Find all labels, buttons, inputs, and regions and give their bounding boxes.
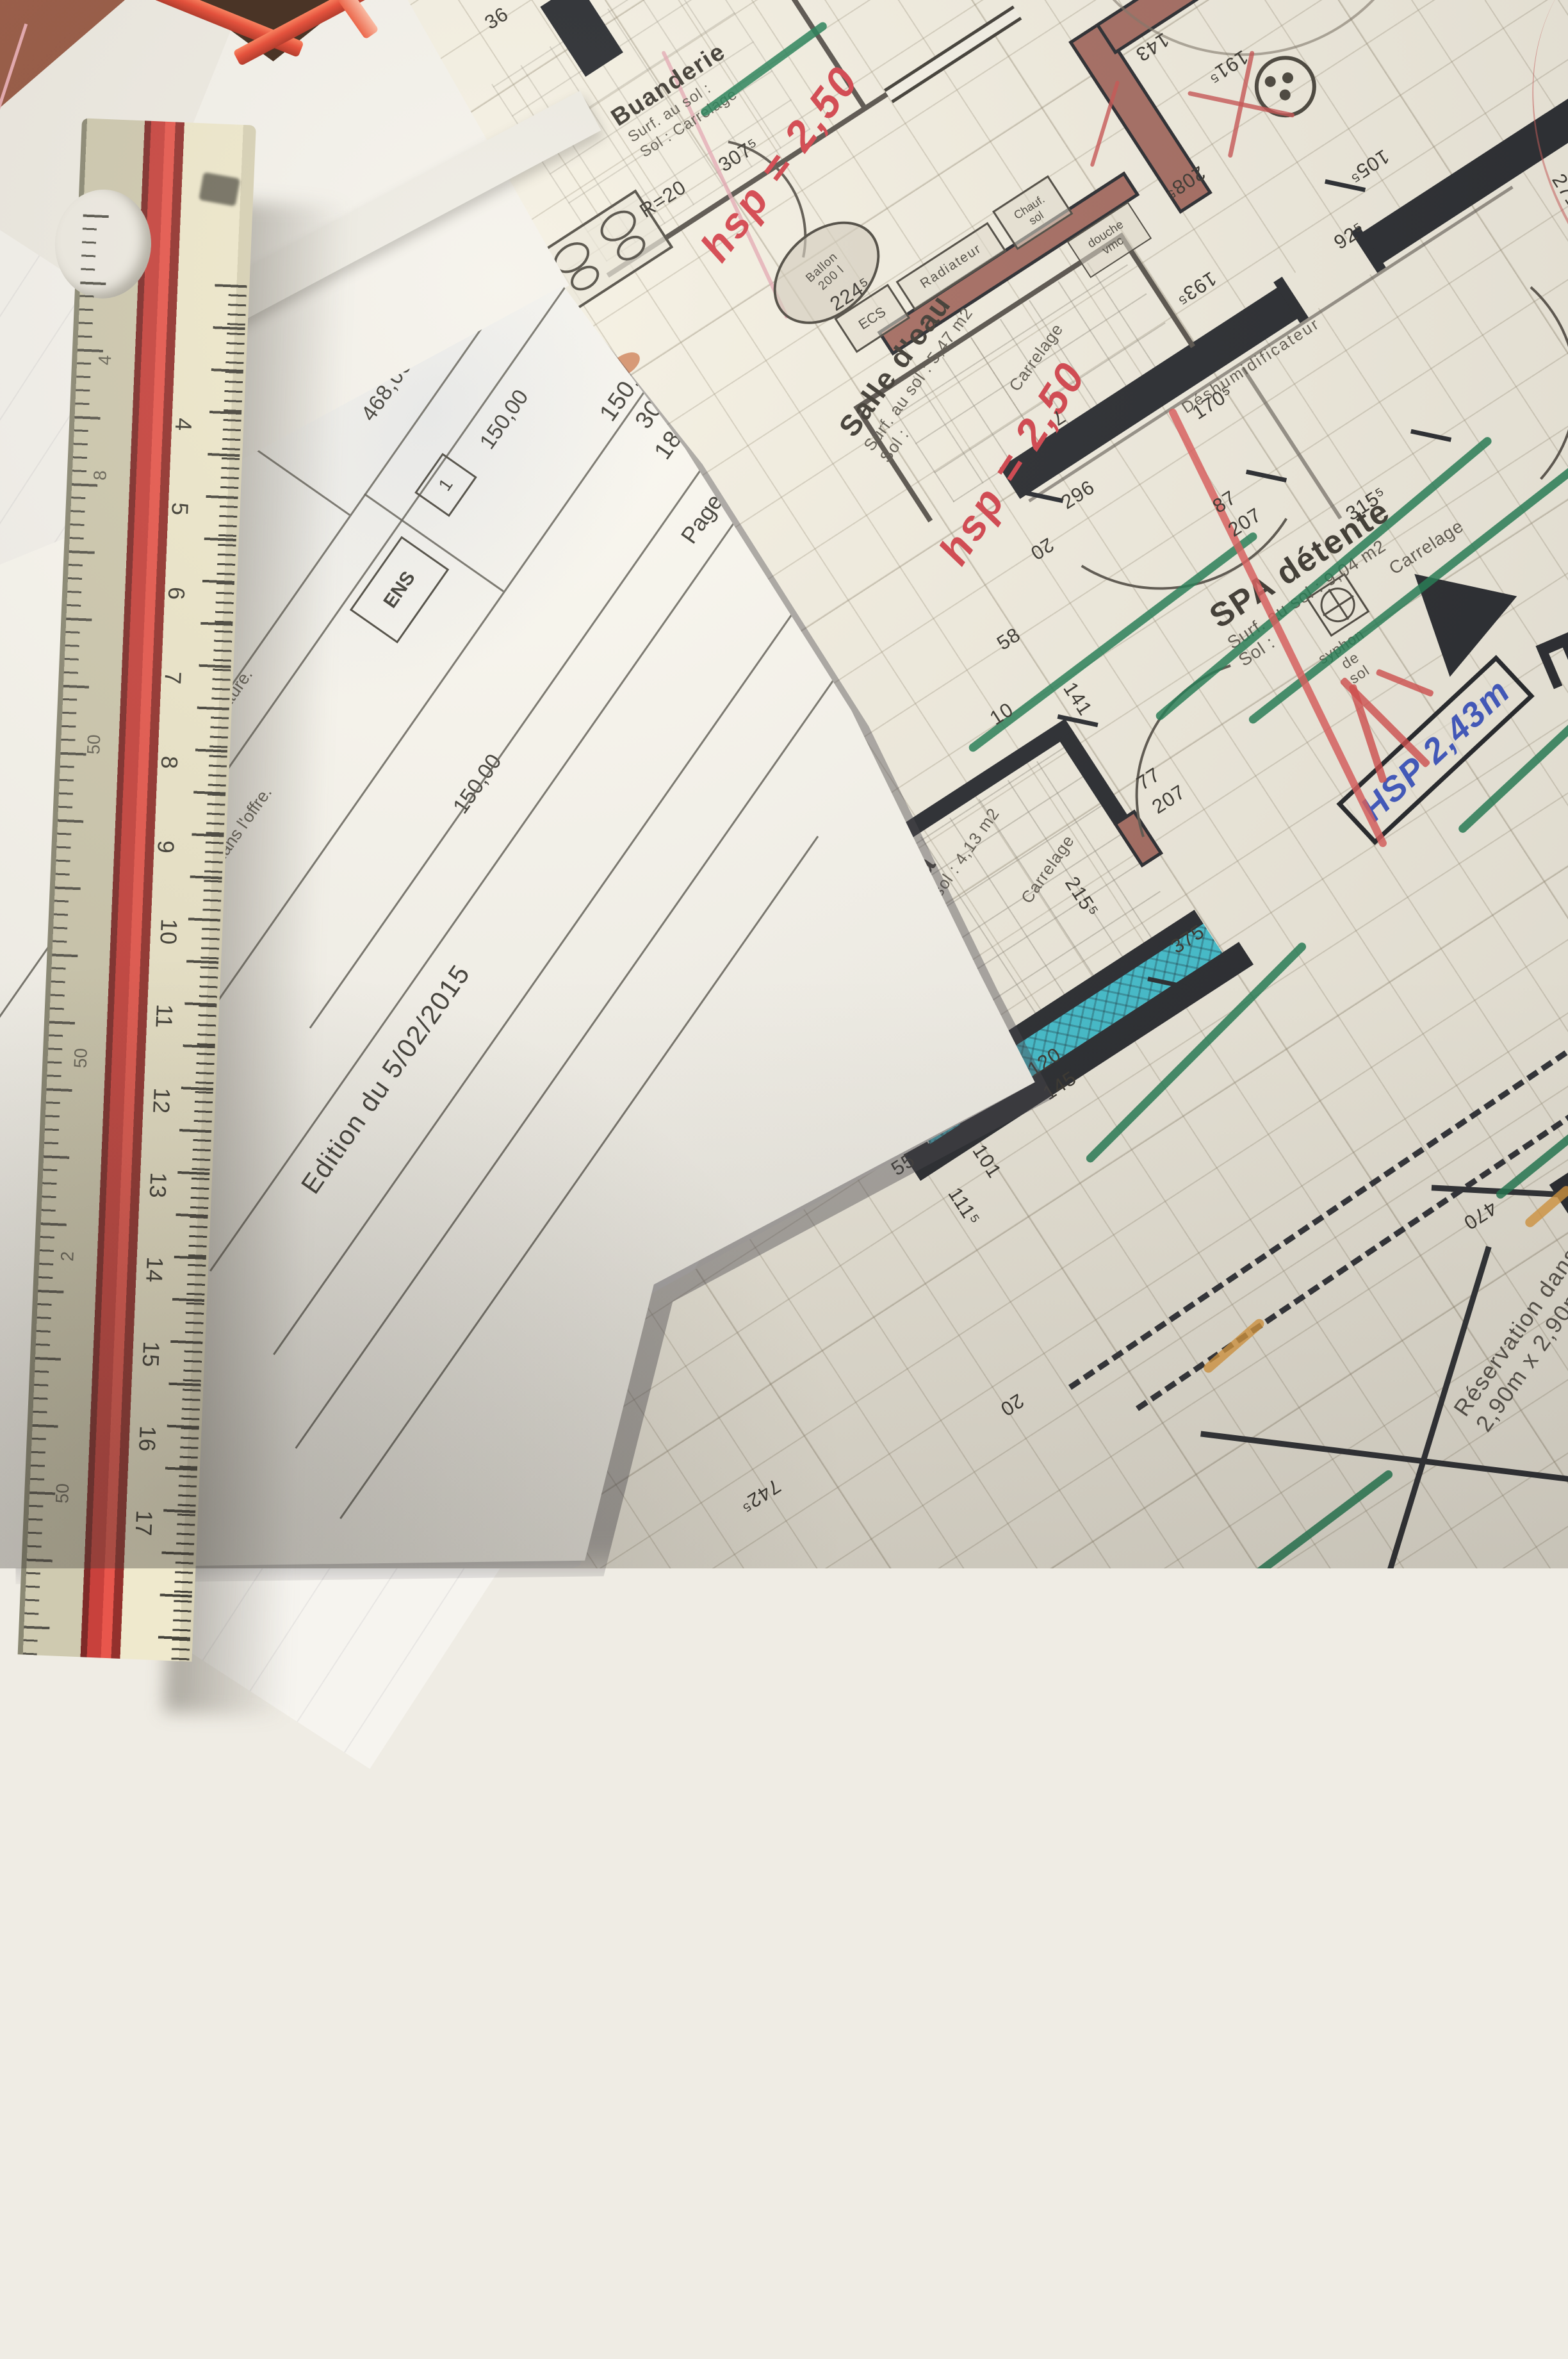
ruler-number: 8 (156, 755, 183, 769)
dimension-label: 742⁵ (735, 1474, 785, 1518)
ruler-number: 5 (166, 502, 193, 516)
dimension-label: 20 (996, 1389, 1028, 1421)
dimension-label: 105⁵ (1344, 145, 1393, 188)
red-scribble (1375, 668, 1434, 697)
ruler-number-left: 50 (70, 1048, 92, 1068)
dimension-label: 101 (968, 1140, 1006, 1183)
edition-date: Edition du 5/02/2015 (295, 958, 477, 1199)
ruler-number-left: 2 (57, 1251, 78, 1262)
ruler-number: 16 (133, 1425, 161, 1452)
cross-line (1355, 1246, 1491, 1677)
ruler-number: 7 (159, 671, 186, 685)
dimension-label: 10 (986, 698, 1018, 730)
dimension-label: 111⁵ (943, 1183, 985, 1230)
green-marker-stroke (1494, 1000, 1568, 1200)
ruler-number-left: 50 (52, 1483, 73, 1504)
orange-marker (1202, 1317, 1266, 1375)
ruler-number-left: 8 (90, 470, 111, 481)
ruler-number-left: 4 (95, 355, 116, 366)
dimension-label: 58 (993, 623, 1025, 655)
compass-triangle-icon (1414, 545, 1535, 677)
ruler-number: 4 (170, 417, 197, 431)
dimension-label: 470 (1459, 1196, 1501, 1235)
ruler-scale-mark (199, 172, 240, 207)
green-marker-stroke (1174, 1468, 1394, 1637)
red-clamp (151, 0, 420, 109)
ruler-number: 9 (152, 840, 179, 854)
ruler-number: 12 (147, 1087, 176, 1114)
ruler-number: 6 (163, 586, 190, 600)
ruler-number: 10 (154, 918, 183, 945)
ruler-number: 15 (137, 1341, 165, 1368)
ruler-number: 17 (130, 1509, 158, 1536)
dimension-label: 141 (1058, 678, 1097, 720)
dimension-label: 36 (480, 3, 512, 35)
window-symbol (884, 6, 1022, 104)
ruler-number: 13 (144, 1172, 172, 1199)
ruler-number: 14 (140, 1256, 168, 1283)
ruler-number-left: 50 (83, 734, 104, 755)
ventilation-fan-icon (1243, 44, 1328, 129)
ruler-number: 11 (150, 1003, 178, 1028)
